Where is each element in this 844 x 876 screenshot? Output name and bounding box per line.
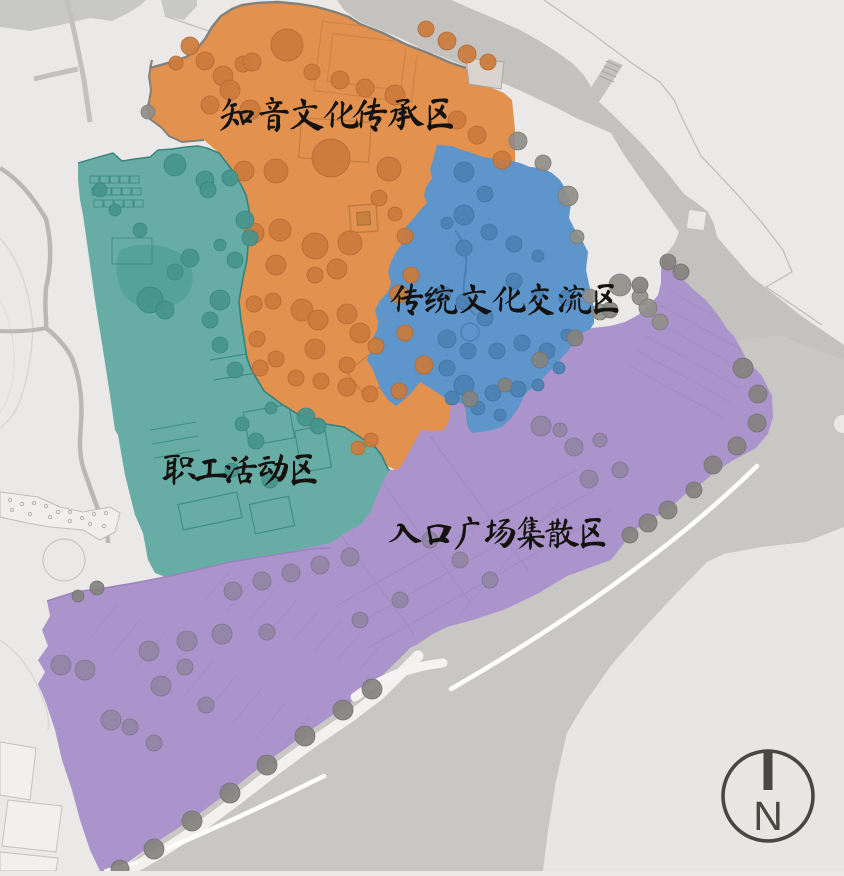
- svg-text:N: N: [753, 793, 783, 839]
